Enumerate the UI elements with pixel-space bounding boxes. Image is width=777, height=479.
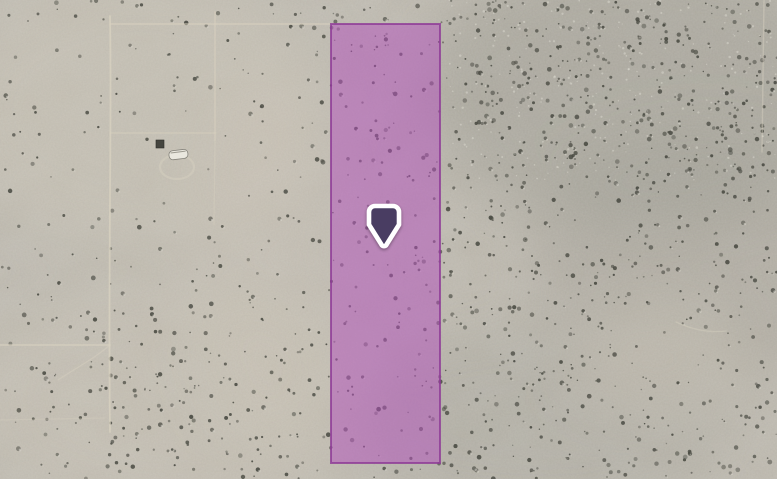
satellite-map[interactable]	[0, 0, 777, 479]
